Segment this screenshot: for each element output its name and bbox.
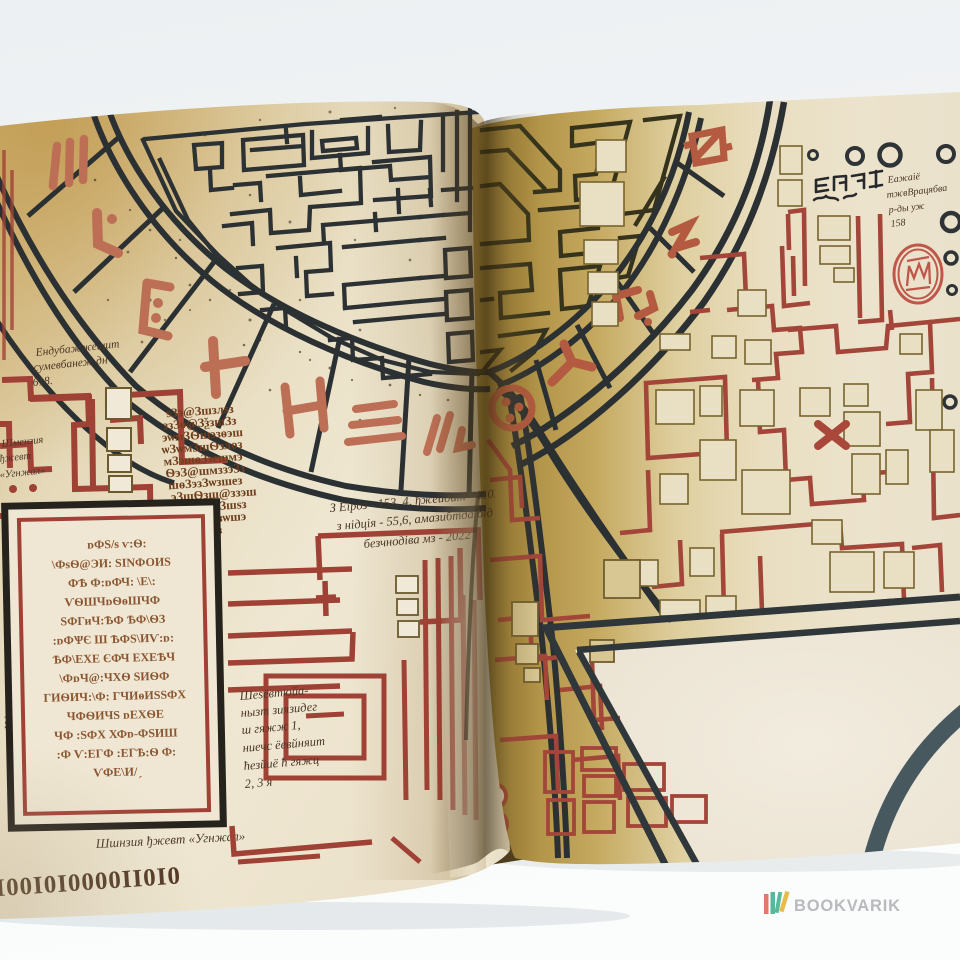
svg-text:158: 158: [890, 217, 906, 230]
svg-text:618.: 618.: [32, 375, 53, 389]
svg-text:ѴѲШЧᴅѲѳШЧФ: ѴѲШЧᴅѲѳШЧФ: [64, 593, 160, 609]
svg-text:ᴅФЅ/ѕ ѵ:Ѳ:: ᴅФЅ/ѕ ѵ:Ѳ:: [87, 536, 147, 552]
svg-text:ЅФГиЧ:ѢФ ѢФ\ѲЗ: ЅФГиЧ:ѢФ ѢФ\ѲЗ: [60, 612, 165, 629]
svg-text:\ФᴅЧ@:ЧХѲ ЅИѲФ: \ФᴅЧ@:ЧХѲ ЅИѲФ: [58, 669, 169, 686]
svg-text:ФѢ Ф:ᴅФЧ: \Е\:: ФѢ Ф:ᴅФЧ: \Е\:: [68, 574, 156, 590]
svg-text:BOOKVARIK: BOOKVARIK: [794, 897, 901, 915]
